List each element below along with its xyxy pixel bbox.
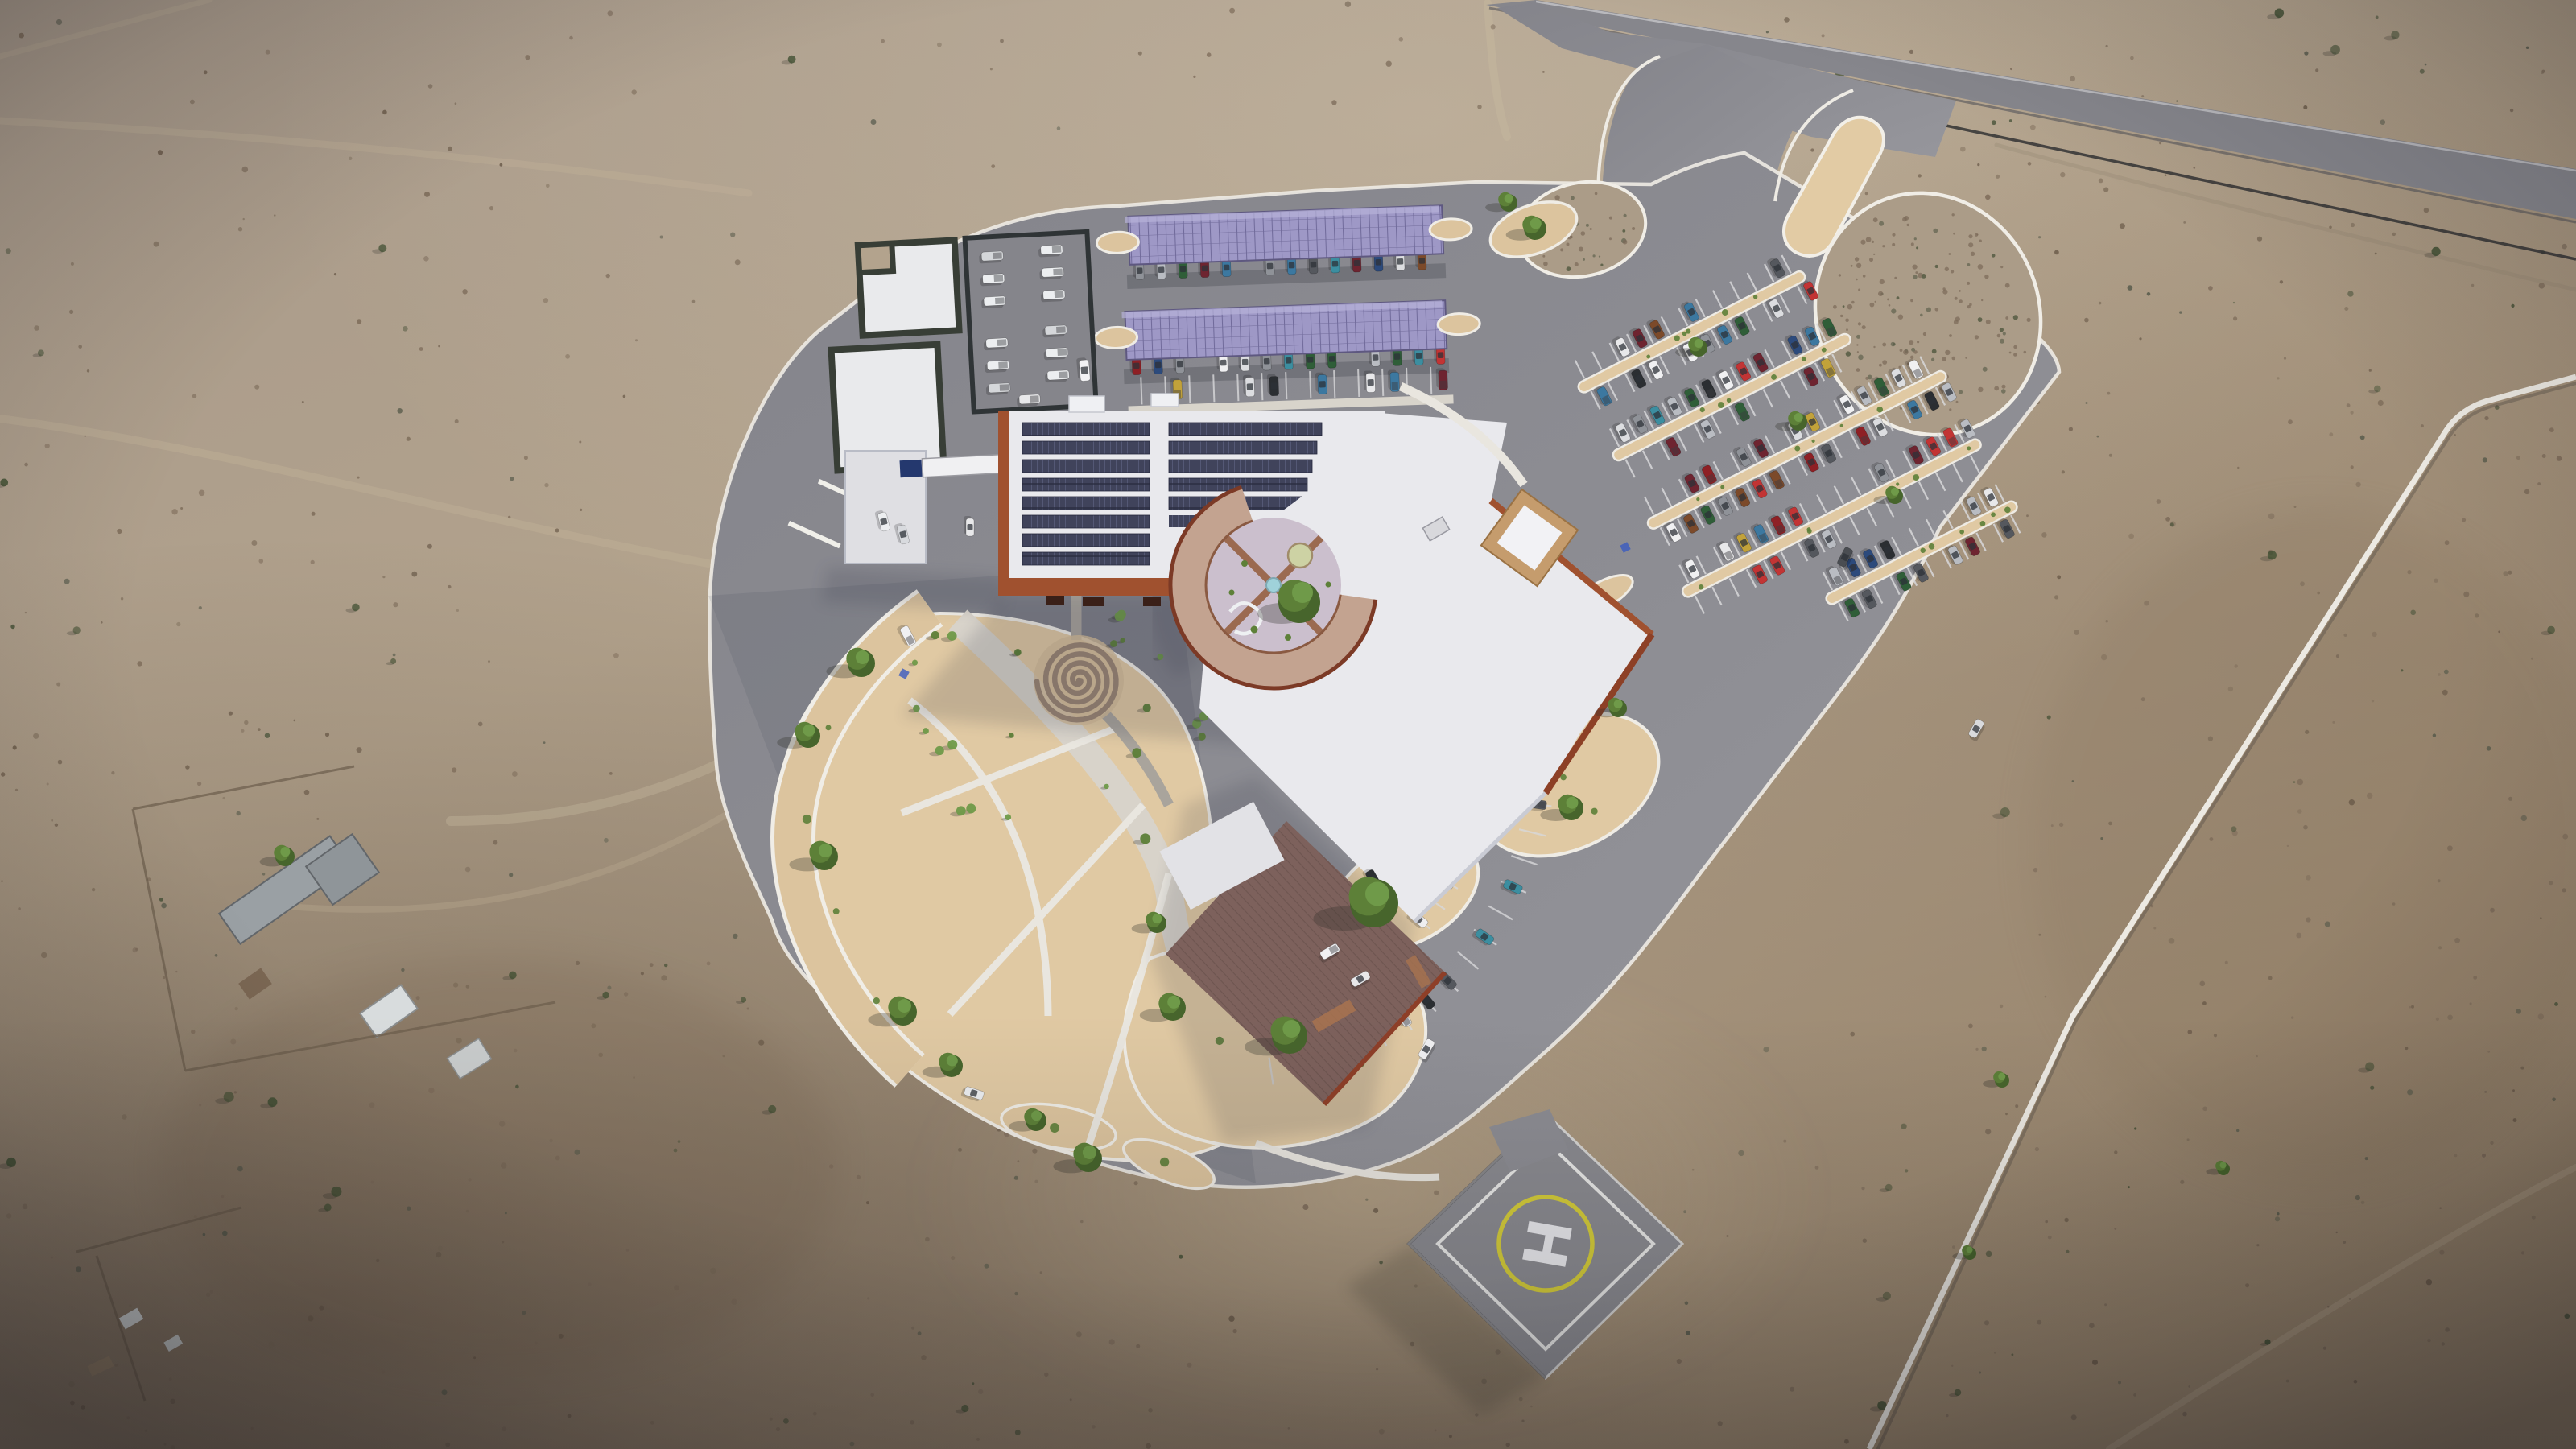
bottom-shade-overlay <box>0 0 2576 1449</box>
aerial-rendering: H <box>0 0 2576 1449</box>
scene-svg: H <box>0 0 2576 1449</box>
